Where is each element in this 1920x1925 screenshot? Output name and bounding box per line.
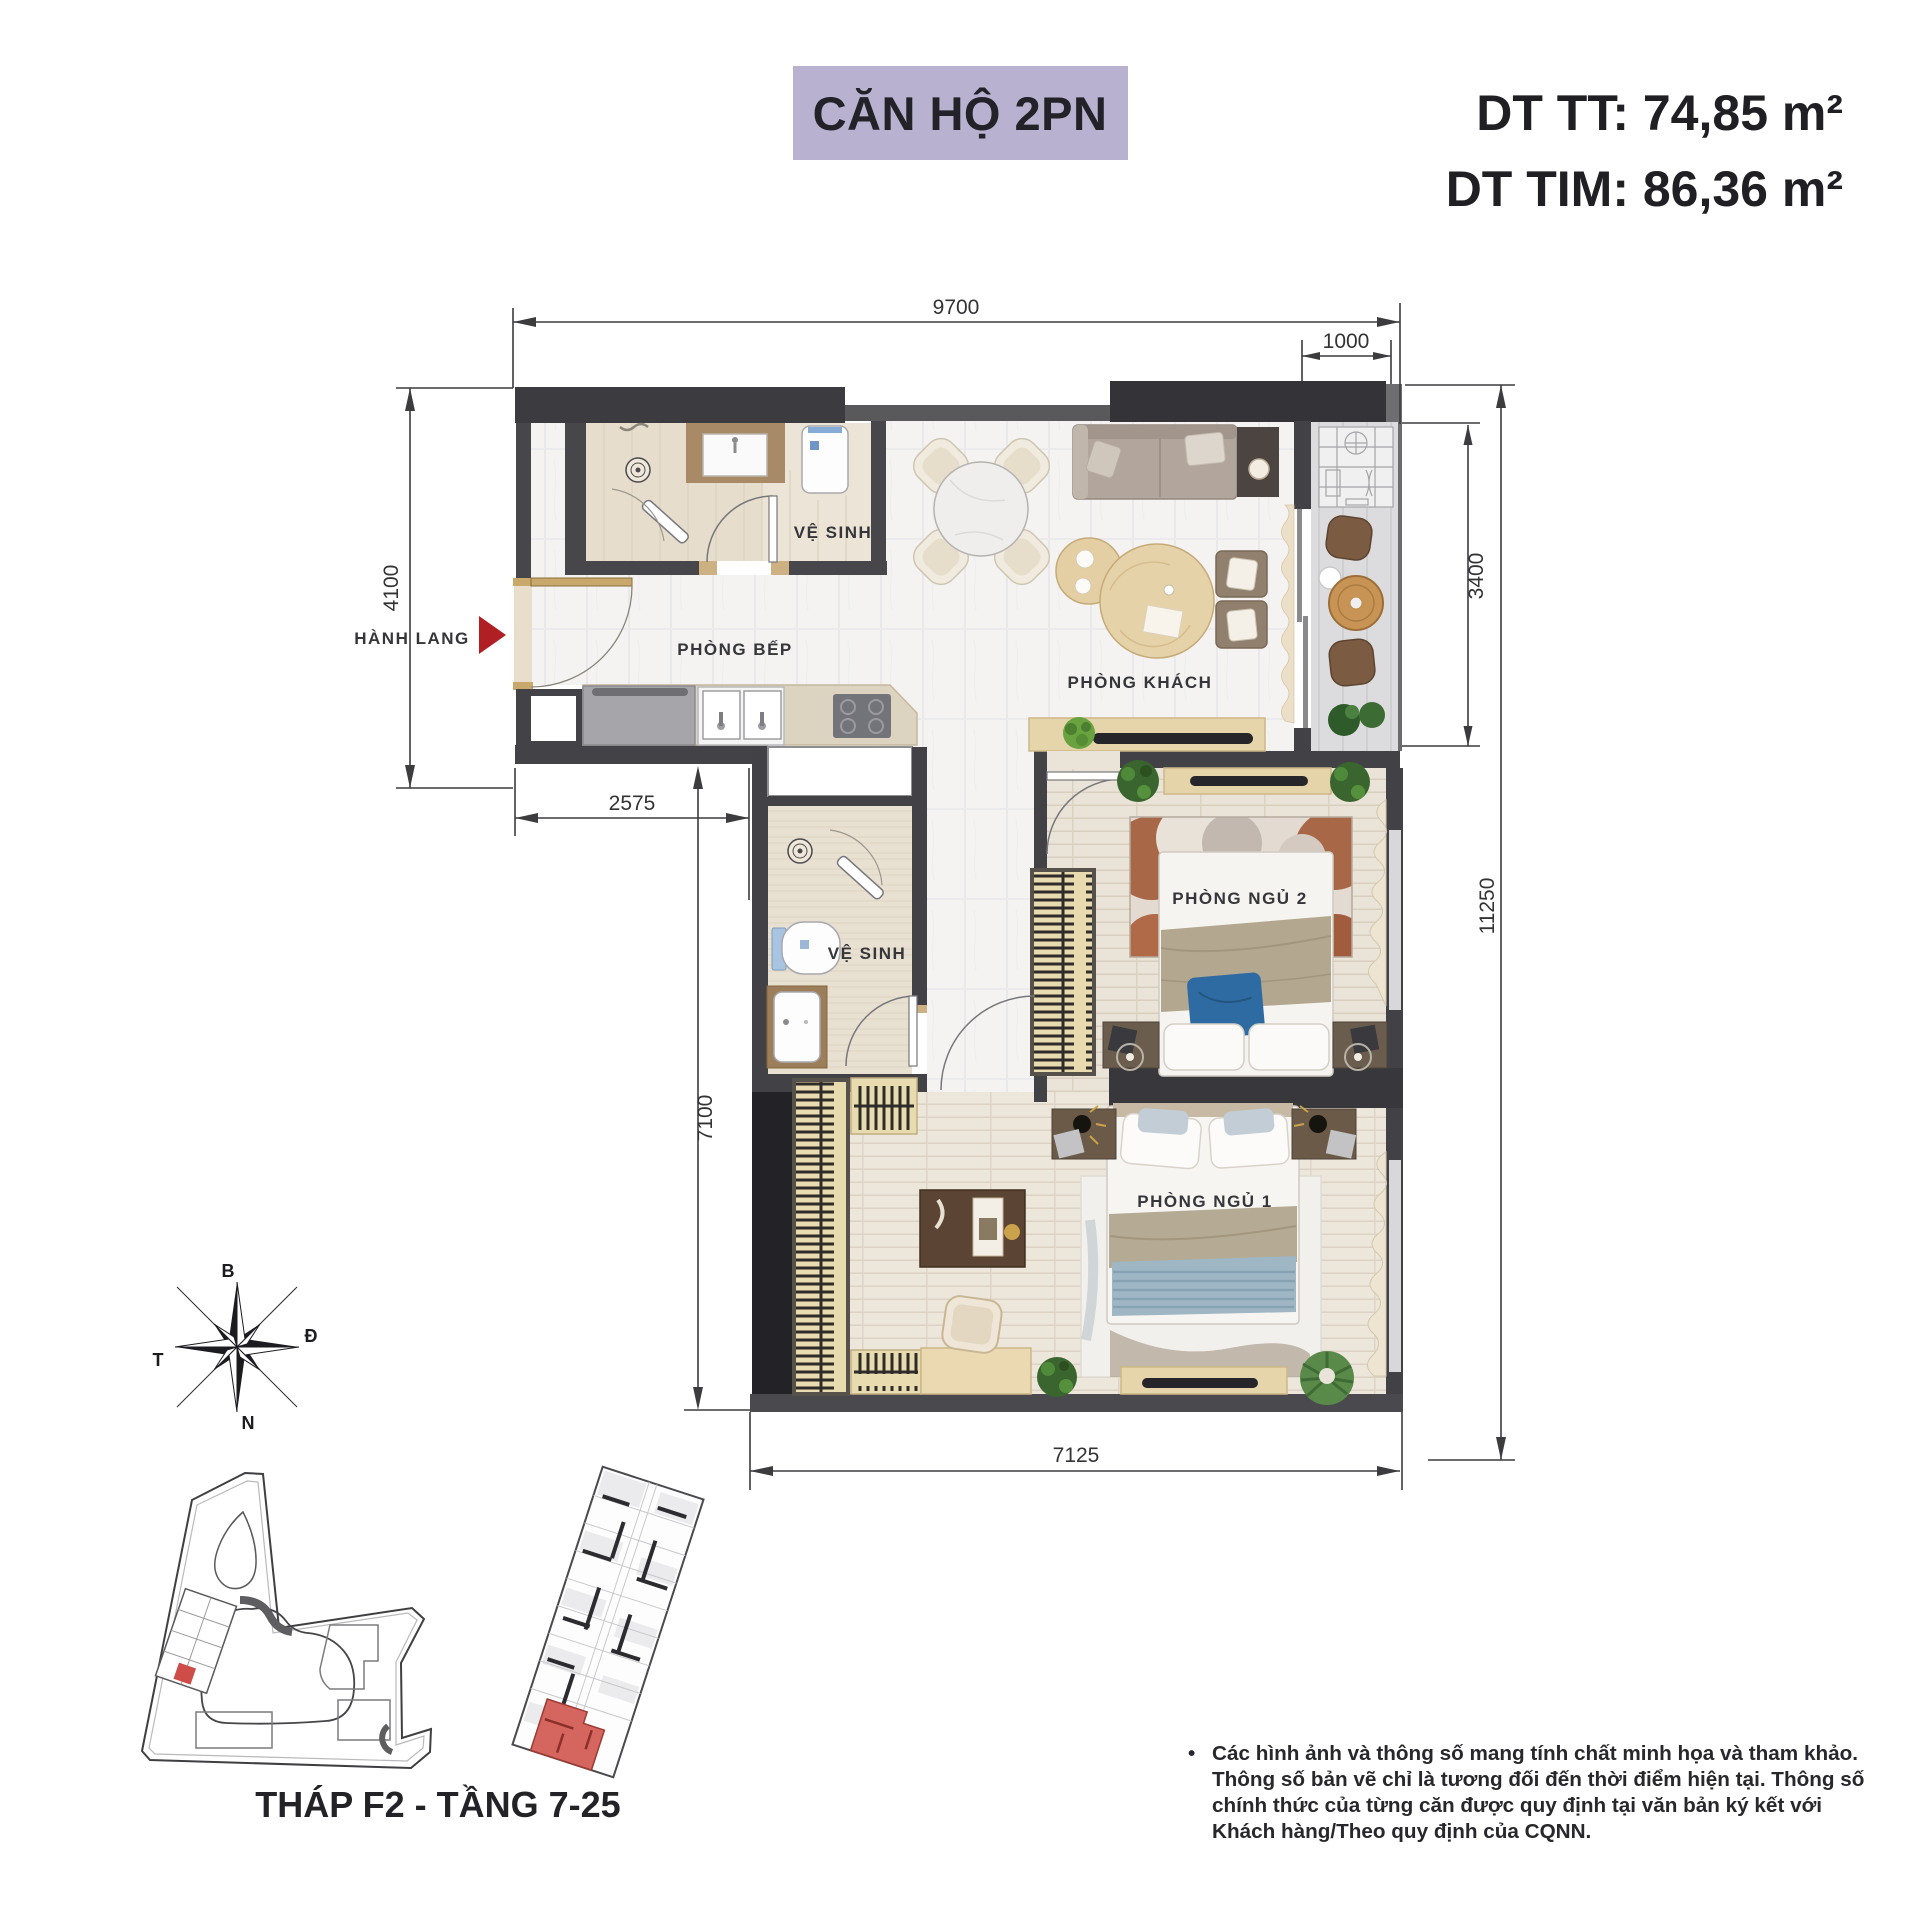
svg-text:4100: 4100 [380,565,403,612]
svg-text:7100: 7100 [694,1095,717,1142]
svg-text:VỆ SINH: VỆ SINH [794,523,873,542]
svg-text:PHÒNG BẾP: PHÒNG BẾP [677,640,793,659]
svg-text:•: • [1188,1742,1195,1765]
svg-text:3400: 3400 [1465,553,1488,600]
svg-text:B: B [222,1261,235,1281]
svg-text:VỆ SINH: VỆ SINH [828,944,907,963]
svg-text:DT TIM: 86,36 m²: DT TIM: 86,36 m² [1446,161,1843,217]
svg-text:Thông số bản vẽ chỉ là tương đ: Thông số bản vẽ chỉ là tương đối đến thờ… [1212,1768,1865,1791]
svg-text:chính thức của từng căn được q: chính thức của từng căn được quy định tạ… [1212,1794,1822,1817]
svg-text:PHÒNG NGỦ 1: PHÒNG NGỦ 1 [1137,1192,1273,1211]
svg-text:Khách hàng/Theo quy định của C: Khách hàng/Theo quy định của CQNN. [1212,1820,1591,1843]
svg-text:CĂN HỘ 2PN: CĂN HỘ 2PN [813,87,1108,140]
svg-text:THÁP F2 - TẦNG 7-25: THÁP F2 - TẦNG 7-25 [255,1784,620,1825]
svg-text:PHÒNG KHÁCH: PHÒNG KHÁCH [1068,673,1213,692]
svg-text:7125: 7125 [1053,1444,1100,1467]
svg-text:Các hình ảnh và thông số mang: Các hình ảnh và thông số mang tính chất … [1212,1742,1858,1765]
svg-text:Đ: Đ [305,1326,318,1346]
svg-text:HÀNH LANG: HÀNH LANG [354,629,470,648]
svg-text:PHÒNG NGỦ 2: PHÒNG NGỦ 2 [1172,889,1308,908]
svg-text:N: N [242,1413,255,1433]
svg-text:DT TT: 74,85 m²: DT TT: 74,85 m² [1476,85,1843,141]
svg-text:11250: 11250 [1476,878,1499,935]
svg-text:9700: 9700 [933,296,980,319]
svg-text:2575: 2575 [609,792,656,815]
svg-text:T: T [153,1350,164,1370]
svg-text:1000: 1000 [1323,330,1370,353]
